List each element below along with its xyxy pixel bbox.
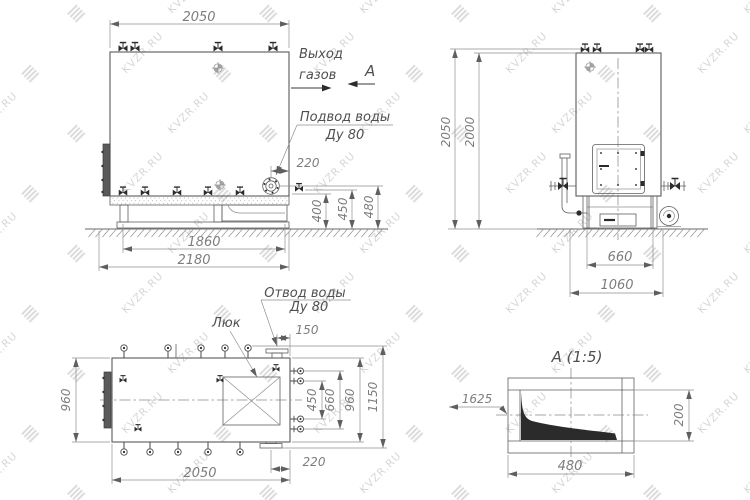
dim-plan-1150: 1150 (366, 381, 380, 412)
stipple-dot (171, 198, 172, 199)
ground-hatch (278, 230, 285, 238)
stipple-dot (176, 203, 177, 204)
stipple-dot (113, 198, 114, 199)
valve-icon (645, 44, 654, 53)
stipple-dot (215, 200, 216, 201)
ground-hatch (670, 230, 677, 238)
stipple-dot (163, 198, 164, 199)
stipple-dot (163, 203, 164, 204)
stipple-dot (197, 203, 198, 204)
nozzle-icon (290, 416, 304, 422)
stipple-dot (138, 198, 139, 199)
dim-front-450: 450 (336, 197, 350, 220)
stipple-dot (155, 198, 156, 199)
watermark-logo-icon (643, 364, 661, 382)
watermark-text: KVZR.RU (358, 330, 404, 376)
side-hatch-plate (103, 144, 110, 196)
section-letter: А (364, 62, 375, 80)
plan-valve-icon (121, 442, 127, 455)
stipple-dot (159, 198, 160, 199)
watermark-text: KVZR.RU (0, 210, 20, 256)
watermark-text: KVZR.RU (0, 0, 20, 16)
stipple-dot (276, 203, 277, 204)
valve-icon (236, 187, 245, 196)
stipple-dot (176, 198, 177, 199)
stipple-dot (251, 198, 252, 199)
bolt-dot (600, 184, 602, 186)
ground-hatch (691, 230, 698, 238)
dim-side-1060: 1060 (600, 278, 633, 293)
dim-detail-480: 480 (558, 459, 583, 474)
door-bolts (600, 152, 637, 186)
stipple-dot (129, 198, 130, 199)
watermark-text: KVZR.RU (550, 0, 596, 16)
valve-icon (173, 187, 182, 196)
base-flange-right (651, 196, 657, 228)
stipple-dot (142, 203, 143, 204)
stipple-texture (113, 198, 288, 204)
stipple-dot (281, 203, 282, 204)
bolt-dot (275, 180, 277, 182)
frame-leg (214, 205, 222, 222)
plan-valve-icon (245, 345, 251, 358)
stipple-dot (156, 200, 157, 201)
stipple-dot (268, 198, 269, 199)
stipple-dot (125, 203, 126, 204)
stipple-dot (211, 200, 212, 201)
drawing-canvas: KVZR.RUKVZR.RUKVZR.RUKVZR.RUKVZR.RUKVZR.… (0, 0, 750, 500)
stipple-dot (234, 203, 235, 204)
stipple-dot (282, 200, 283, 201)
ground-hatch (614, 230, 621, 238)
dim-side-2050: 2050 (439, 116, 453, 147)
stipple-dot (209, 203, 210, 204)
ground-hatch (663, 230, 670, 238)
bolt-dot (102, 391, 104, 393)
stipple-dot (202, 200, 203, 201)
dim-side-2000: 2000 (463, 116, 477, 147)
stipple-dot (139, 200, 140, 201)
stipple-dot (117, 203, 118, 204)
watermark-logo-icon (597, 304, 615, 322)
dim-plan-220: 220 (303, 455, 326, 469)
ground-hatch (243, 230, 250, 238)
watermark-logo-icon (67, 124, 85, 142)
watermark-text: KVZR.RU (120, 390, 166, 436)
stipple-dot (167, 203, 168, 204)
blower-fan-icon (657, 207, 681, 227)
stipple-dot (127, 200, 128, 201)
watermark-logo-icon (451, 4, 469, 22)
stipple-dot (276, 198, 277, 199)
ground-hatch (649, 230, 656, 238)
ground-hatch (110, 230, 117, 238)
detail-view-a: А (1:5) 1625 200 480 (449, 348, 694, 478)
stipple-dot (213, 203, 214, 204)
ground-hatch (299, 230, 306, 238)
bolt-dot (101, 165, 103, 167)
stipple-dot (123, 200, 124, 201)
plan-valve-icon (147, 442, 153, 455)
watermark-logo-icon (259, 244, 277, 262)
section-arrowhead-icon (348, 81, 358, 87)
stipple-dot (144, 200, 145, 201)
watermark-text: KVZR.RU (742, 0, 750, 16)
dim-plan-width-left: 960 (59, 388, 73, 411)
nozzle-icon (290, 378, 304, 384)
water-outlet-flange (266, 349, 288, 358)
stipple-dot (121, 198, 122, 199)
bolt-dot (264, 183, 266, 185)
bolt-dot (102, 377, 104, 379)
dim-detail-200: 200 (672, 403, 686, 426)
ground-hatch (271, 230, 278, 238)
stipple-dot (165, 200, 166, 201)
ground-hatch (327, 230, 334, 238)
dim-plan-660: 660 (323, 388, 337, 411)
stipple-dot (155, 203, 156, 204)
stipple-dot (171, 203, 172, 204)
stipple-dot (184, 203, 185, 204)
watermark-text: KVZR.RU (120, 30, 166, 76)
dim-front-2180: 2180 (177, 253, 210, 268)
drain-valve-icon (576, 210, 581, 215)
stipple-dot (117, 198, 118, 199)
stipple-dot (272, 198, 273, 199)
ground-hatch (355, 230, 362, 238)
watermark-logo-icon (21, 424, 39, 442)
watermark-logo-icon (451, 364, 469, 382)
dim-side-660: 660 (608, 250, 633, 265)
watermark-text: KVZR.RU (742, 210, 750, 256)
watermark-text: KVZR.RU (696, 30, 742, 76)
stipple-dot (113, 203, 114, 204)
ground-hatch (698, 230, 705, 238)
bolt-dot (268, 178, 270, 180)
stipple-dot (226, 203, 227, 204)
nozzle-icon (290, 368, 304, 374)
watermark-text: KVZR.RU (696, 270, 742, 316)
stipple-dot (255, 203, 256, 204)
watermark-text: KVZR.RU (504, 150, 550, 196)
stipple-dot (228, 200, 229, 201)
valve-icon (269, 43, 278, 52)
watermark-text: KVZR.RU (696, 390, 742, 436)
watermark-text: KVZR.RU (696, 150, 742, 196)
ground-hatch (677, 230, 684, 238)
stipple-dot (121, 203, 122, 204)
dim-plan-450: 450 (305, 388, 319, 411)
stipple-dot (184, 198, 185, 199)
ground-hatch (600, 230, 607, 238)
ash-pan-curve (228, 205, 285, 213)
stipple-dot (201, 203, 202, 204)
stipple-dot (159, 203, 160, 204)
valve-icon (119, 43, 128, 52)
side-hatch-plate-plan (104, 372, 111, 428)
valve-icon (273, 365, 280, 372)
ground-hatch (131, 230, 138, 238)
valve-icon (120, 376, 127, 383)
bolt-dot (101, 179, 103, 181)
watermark-logo-icon (597, 64, 615, 82)
bolt-dot (635, 168, 637, 170)
stipple-dot (125, 198, 126, 199)
stipple-dot (114, 200, 115, 201)
bolt-dot (101, 151, 103, 153)
watermark-logo-icon (259, 364, 277, 382)
ground-hatch (229, 230, 236, 238)
stipple-dot (148, 200, 149, 201)
stipple-dot (226, 198, 227, 199)
ground-hatch (89, 230, 96, 238)
watermark-logo-icon (643, 124, 661, 142)
bolt-dot (600, 152, 602, 154)
door-hinge (641, 151, 645, 156)
furnace-door-inner (597, 149, 641, 189)
stipple-dot (167, 198, 168, 199)
stipple-dot (131, 200, 132, 201)
label-water-outlet-1: Отвод воды (264, 286, 345, 301)
watermark-logo-icon (259, 484, 277, 500)
watermark-logo-icon (405, 304, 423, 322)
watermark-text: KVZR.RU (0, 330, 20, 376)
watermark-logo-icon (643, 4, 661, 22)
frame-leg (120, 205, 128, 222)
dim-plan-960: 960 (343, 388, 357, 411)
stipple-dot (281, 198, 282, 199)
label-water-supply-1: Подвод воды (300, 110, 390, 125)
ground-hatch (264, 230, 271, 238)
stipple-dot (249, 200, 250, 201)
dim-front-400: 400 (310, 199, 324, 222)
stipple-dot (274, 200, 275, 201)
watermark-text: KVZR.RU (120, 150, 166, 196)
ground-hatch (635, 230, 642, 238)
stipple-dot (134, 203, 135, 204)
watermark-logo-icon (451, 484, 469, 500)
stipple-dot (247, 203, 248, 204)
ground-hatch (257, 230, 264, 238)
ground-hatch (306, 230, 313, 238)
nozzle-icon (290, 426, 304, 432)
watermark-logo-icon (643, 244, 661, 262)
ground-hatch (250, 230, 257, 238)
stipple-dot (209, 198, 210, 199)
stipple-dot (150, 198, 151, 199)
watermark-logo-icon (67, 484, 85, 500)
ground-hatch (684, 230, 691, 238)
ground-hatch (593, 230, 600, 238)
watermark-logo-icon (259, 124, 277, 142)
stipple-dot (188, 203, 189, 204)
dim-front-1860: 1860 (187, 235, 220, 250)
ground-hatch (313, 230, 320, 238)
stipple-dot (251, 203, 252, 204)
watermark-text: KVZR.RU (742, 330, 750, 376)
dim-front-width: 2050 (182, 10, 215, 25)
watermark-text: KVZR.RU (358, 450, 404, 496)
stipple-dot (146, 203, 147, 204)
watermark-logo-icon (21, 64, 39, 82)
watermark-text: KVZR.RU (742, 450, 750, 496)
stipple-dot (205, 203, 206, 204)
plan-view: Люк Отвод воды Ду 80 150 960 450 660 960… (59, 286, 387, 484)
valve-icon (295, 184, 303, 192)
label-gas-outlet-2: газов (299, 68, 336, 83)
watermark-text: KVZR.RU (0, 450, 20, 496)
ground-hatch (159, 230, 166, 238)
watermark-logo-icon (405, 184, 423, 202)
stipple-dot (180, 198, 181, 199)
stipple-dot (230, 203, 231, 204)
dim-plan-150: 150 (296, 323, 319, 337)
watermark-text: KVZR.RU (550, 90, 596, 136)
label-water-supply-2: Ду 80 (325, 128, 365, 143)
stipple-dot (205, 198, 206, 199)
ground-hatch (320, 230, 327, 238)
stipple-dot (260, 198, 261, 199)
plan-valve-icon (121, 345, 127, 358)
pipe-cap (560, 154, 570, 158)
stipple-dot (239, 203, 240, 204)
stipple-dot (169, 200, 170, 201)
valve-icon (217, 376, 224, 383)
watermark-logo-icon (643, 484, 661, 500)
stipple-dot (285, 198, 286, 199)
stipple-dot (223, 200, 224, 201)
ground-hatch (152, 230, 159, 238)
bolt-dot (272, 192, 274, 194)
bolt-dot (617, 152, 619, 154)
stipple-dot (118, 200, 119, 201)
valve-icon (141, 187, 150, 196)
watermark-text: KVZR.RU (0, 90, 20, 136)
dim-front-480: 480 (362, 195, 376, 218)
stipple-dot (253, 200, 254, 201)
stipple-dot (194, 200, 195, 201)
stipple-dot (197, 198, 198, 199)
stipple-dot (272, 203, 273, 204)
stipple-dot (264, 198, 265, 199)
plan-valve-icon (165, 345, 171, 358)
stipple-dot (264, 203, 265, 204)
watermark-logo-icon (21, 304, 39, 322)
ground-hatch (607, 230, 614, 238)
ground-hatch (236, 230, 243, 238)
watermark-text: KVZR.RU (120, 270, 166, 316)
ground-hatch (124, 230, 131, 238)
stipple-dot (244, 200, 245, 201)
watermark-text: KVZR.RU (166, 90, 212, 136)
base-side (587, 196, 653, 228)
watermark-text: KVZR.RU (358, 0, 404, 16)
gas-flow-arrowhead-icon (322, 85, 332, 92)
stipple-dot (218, 198, 219, 199)
watermark-logo-icon (67, 244, 85, 262)
stipple-dot (255, 198, 256, 199)
ground-hatch (334, 230, 341, 238)
ground-hatch (628, 230, 635, 238)
bolt-dot (101, 191, 103, 193)
stipple-dot (129, 203, 130, 204)
ground-hatch (222, 230, 229, 238)
stipple-dot (270, 200, 271, 201)
stipple-dot (142, 198, 143, 199)
ground-hatch (621, 230, 628, 238)
ground-hatch (117, 230, 124, 238)
ground-hatch (292, 230, 299, 238)
plan-valve-icon (175, 442, 181, 455)
stipple-dot (173, 200, 174, 201)
bottom-band (110, 196, 289, 205)
plan-valve-icon (222, 345, 228, 358)
stipple-dot (240, 200, 241, 201)
stipple-dot (222, 198, 223, 199)
boiler-technical-drawing: KVZR.RUKVZR.RUKVZR.RUKVZR.RUKVZR.RUKVZR.… (0, 0, 750, 500)
valve-icon (593, 44, 602, 53)
ground-hatch (537, 230, 544, 238)
stipple-dot (188, 198, 189, 199)
ground-hatch (551, 230, 558, 238)
ground-hatch (362, 230, 369, 238)
stipple-dot (160, 200, 161, 201)
stipple-dot (219, 200, 220, 201)
stipple-dot (177, 200, 178, 201)
ground-hatch (285, 230, 292, 238)
stipple-dot (150, 203, 151, 204)
valve-icon (581, 44, 590, 53)
stipple-dot (265, 200, 266, 201)
target-mark-icon (584, 61, 596, 73)
stipple-dot (286, 200, 287, 201)
stipple-dot (138, 203, 139, 204)
bolt-dot (635, 184, 637, 186)
label-water-outlet-2: Ду 80 (289, 300, 329, 315)
watermark-text: KVZR.RU (504, 270, 550, 316)
stipple-dot (247, 198, 248, 199)
watermark-logo-icon (21, 184, 39, 202)
stipple-dot (236, 200, 237, 201)
ground-hatch (656, 230, 663, 238)
stipple-dot (213, 198, 214, 199)
stipple-dot (181, 200, 182, 201)
stipple-dot (198, 200, 199, 201)
stipple-dot (134, 198, 135, 199)
detail-title: А (1:5) (551, 348, 603, 366)
side-fitting-left (549, 179, 576, 192)
watermark-logo-icon (213, 184, 231, 202)
side-view: 2050 2000 660 1060 (439, 49, 708, 297)
stipple-dot (218, 203, 219, 204)
dim-plan-length: 2050 (183, 466, 216, 481)
stipple-dot (135, 200, 136, 201)
hatch-opening (223, 377, 280, 425)
stipple-dot (261, 200, 262, 201)
stipple-dot (192, 198, 193, 199)
valve-icon (204, 187, 213, 196)
stipple-dot (201, 198, 202, 199)
stipple-dot (234, 198, 235, 199)
ground-hatch (138, 230, 145, 238)
bolt-dot (617, 184, 619, 186)
ground-hatch (348, 230, 355, 238)
dim-detail-level: 1625 (462, 392, 493, 406)
ground-hatch (166, 230, 173, 238)
stipple-dot (152, 200, 153, 201)
stipple-dot (192, 203, 193, 204)
valve-icon (214, 43, 223, 52)
